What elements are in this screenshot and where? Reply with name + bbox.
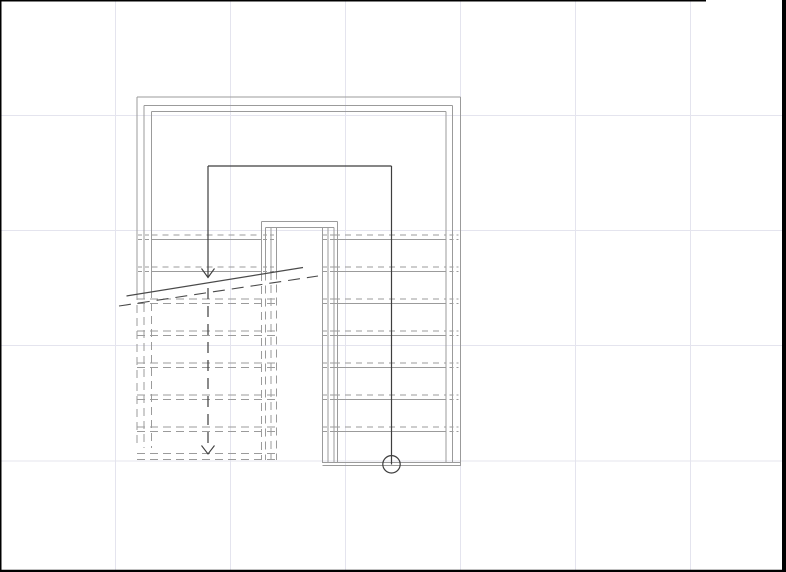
cad-drawing-viewport[interactable] [0, 0, 786, 572]
shaft-walls [137, 97, 461, 466]
canvas-border [0, 0, 786, 572]
break-line [119, 268, 318, 307]
grid-lines [0, 0, 786, 572]
left-flight-treads [137, 235, 277, 460]
stair-plan-canvas[interactable] [0, 0, 786, 572]
down-arrow-hidden-icon [202, 446, 215, 455]
